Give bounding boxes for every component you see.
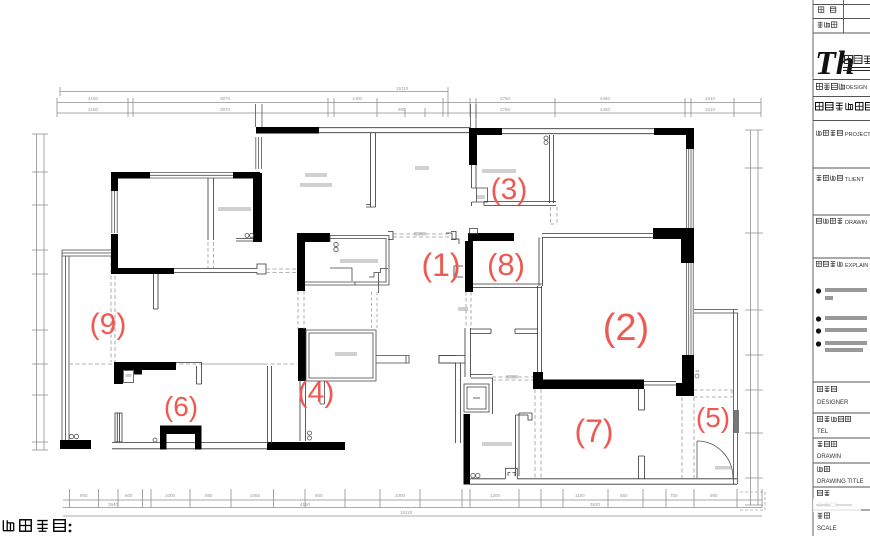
svg-text:3640: 3640 <box>108 502 119 507</box>
svg-text:1510: 1510 <box>705 96 716 101</box>
svg-text:1000: 1000 <box>395 493 406 498</box>
svg-text:(9): (9) <box>90 308 127 341</box>
svg-text:4150: 4150 <box>300 502 311 507</box>
svg-text:1200: 1200 <box>490 493 501 498</box>
svg-text:980: 980 <box>205 493 213 498</box>
svg-text:(4): (4) <box>298 376 335 409</box>
svg-text:(7): (7) <box>574 413 613 449</box>
svg-text:1510: 1510 <box>705 107 716 112</box>
svg-text:EXPLAIN: EXPLAIN <box>845 263 868 269</box>
svg-text:15110: 15110 <box>396 86 409 91</box>
svg-text:(5): (5) <box>696 402 730 433</box>
svg-text:1000: 1000 <box>165 493 176 498</box>
svg-text:850: 850 <box>620 493 628 498</box>
svg-text:TEL: TEL <box>817 429 829 435</box>
svg-text:SCALE: SCALE <box>817 526 837 532</box>
svg-text:3870: 3870 <box>220 96 231 101</box>
svg-text:1050: 1050 <box>250 493 261 498</box>
svg-text:2760: 2760 <box>500 96 511 101</box>
svg-text:950: 950 <box>315 493 323 498</box>
svg-text:DRAWIN: DRAWIN <box>845 220 867 226</box>
svg-text:DRAWING TITLE: DRAWING TITLE <box>817 479 864 485</box>
svg-text:3620: 3620 <box>590 502 601 507</box>
svg-text:(8): (8) <box>487 247 525 282</box>
svg-text:2760: 2760 <box>500 107 511 112</box>
svg-text:4450: 4450 <box>600 96 611 101</box>
svg-text:3870: 3870 <box>220 107 231 112</box>
svg-text:(6): (6) <box>164 391 198 422</box>
svg-text:600: 600 <box>125 493 133 498</box>
svg-text:TLIENT: TLIENT <box>845 177 865 183</box>
svg-text:DRAWIN: DRAWIN <box>817 454 841 460</box>
svg-text:(1): (1) <box>421 247 460 283</box>
svg-text:2150: 2150 <box>88 107 99 112</box>
svg-text:4450: 4450 <box>600 107 611 112</box>
svg-text:900: 900 <box>398 107 406 112</box>
svg-text:DESIGN: DESIGN <box>846 85 867 91</box>
svg-text:PROJECT: PROJECT <box>845 132 870 138</box>
svg-text:15110: 15110 <box>400 510 413 515</box>
svg-text:(3): (3) <box>491 173 528 206</box>
svg-text:980: 980 <box>710 493 718 498</box>
svg-text:1400: 1400 <box>352 96 363 101</box>
svg-text:DESIGNER: DESIGNER <box>817 400 849 406</box>
svg-text:2150: 2150 <box>88 96 99 101</box>
svg-text:900: 900 <box>80 493 88 498</box>
svg-text:1100: 1100 <box>575 493 585 498</box>
svg-text:700: 700 <box>670 493 678 498</box>
svg-text:(2): (2) <box>603 307 649 349</box>
